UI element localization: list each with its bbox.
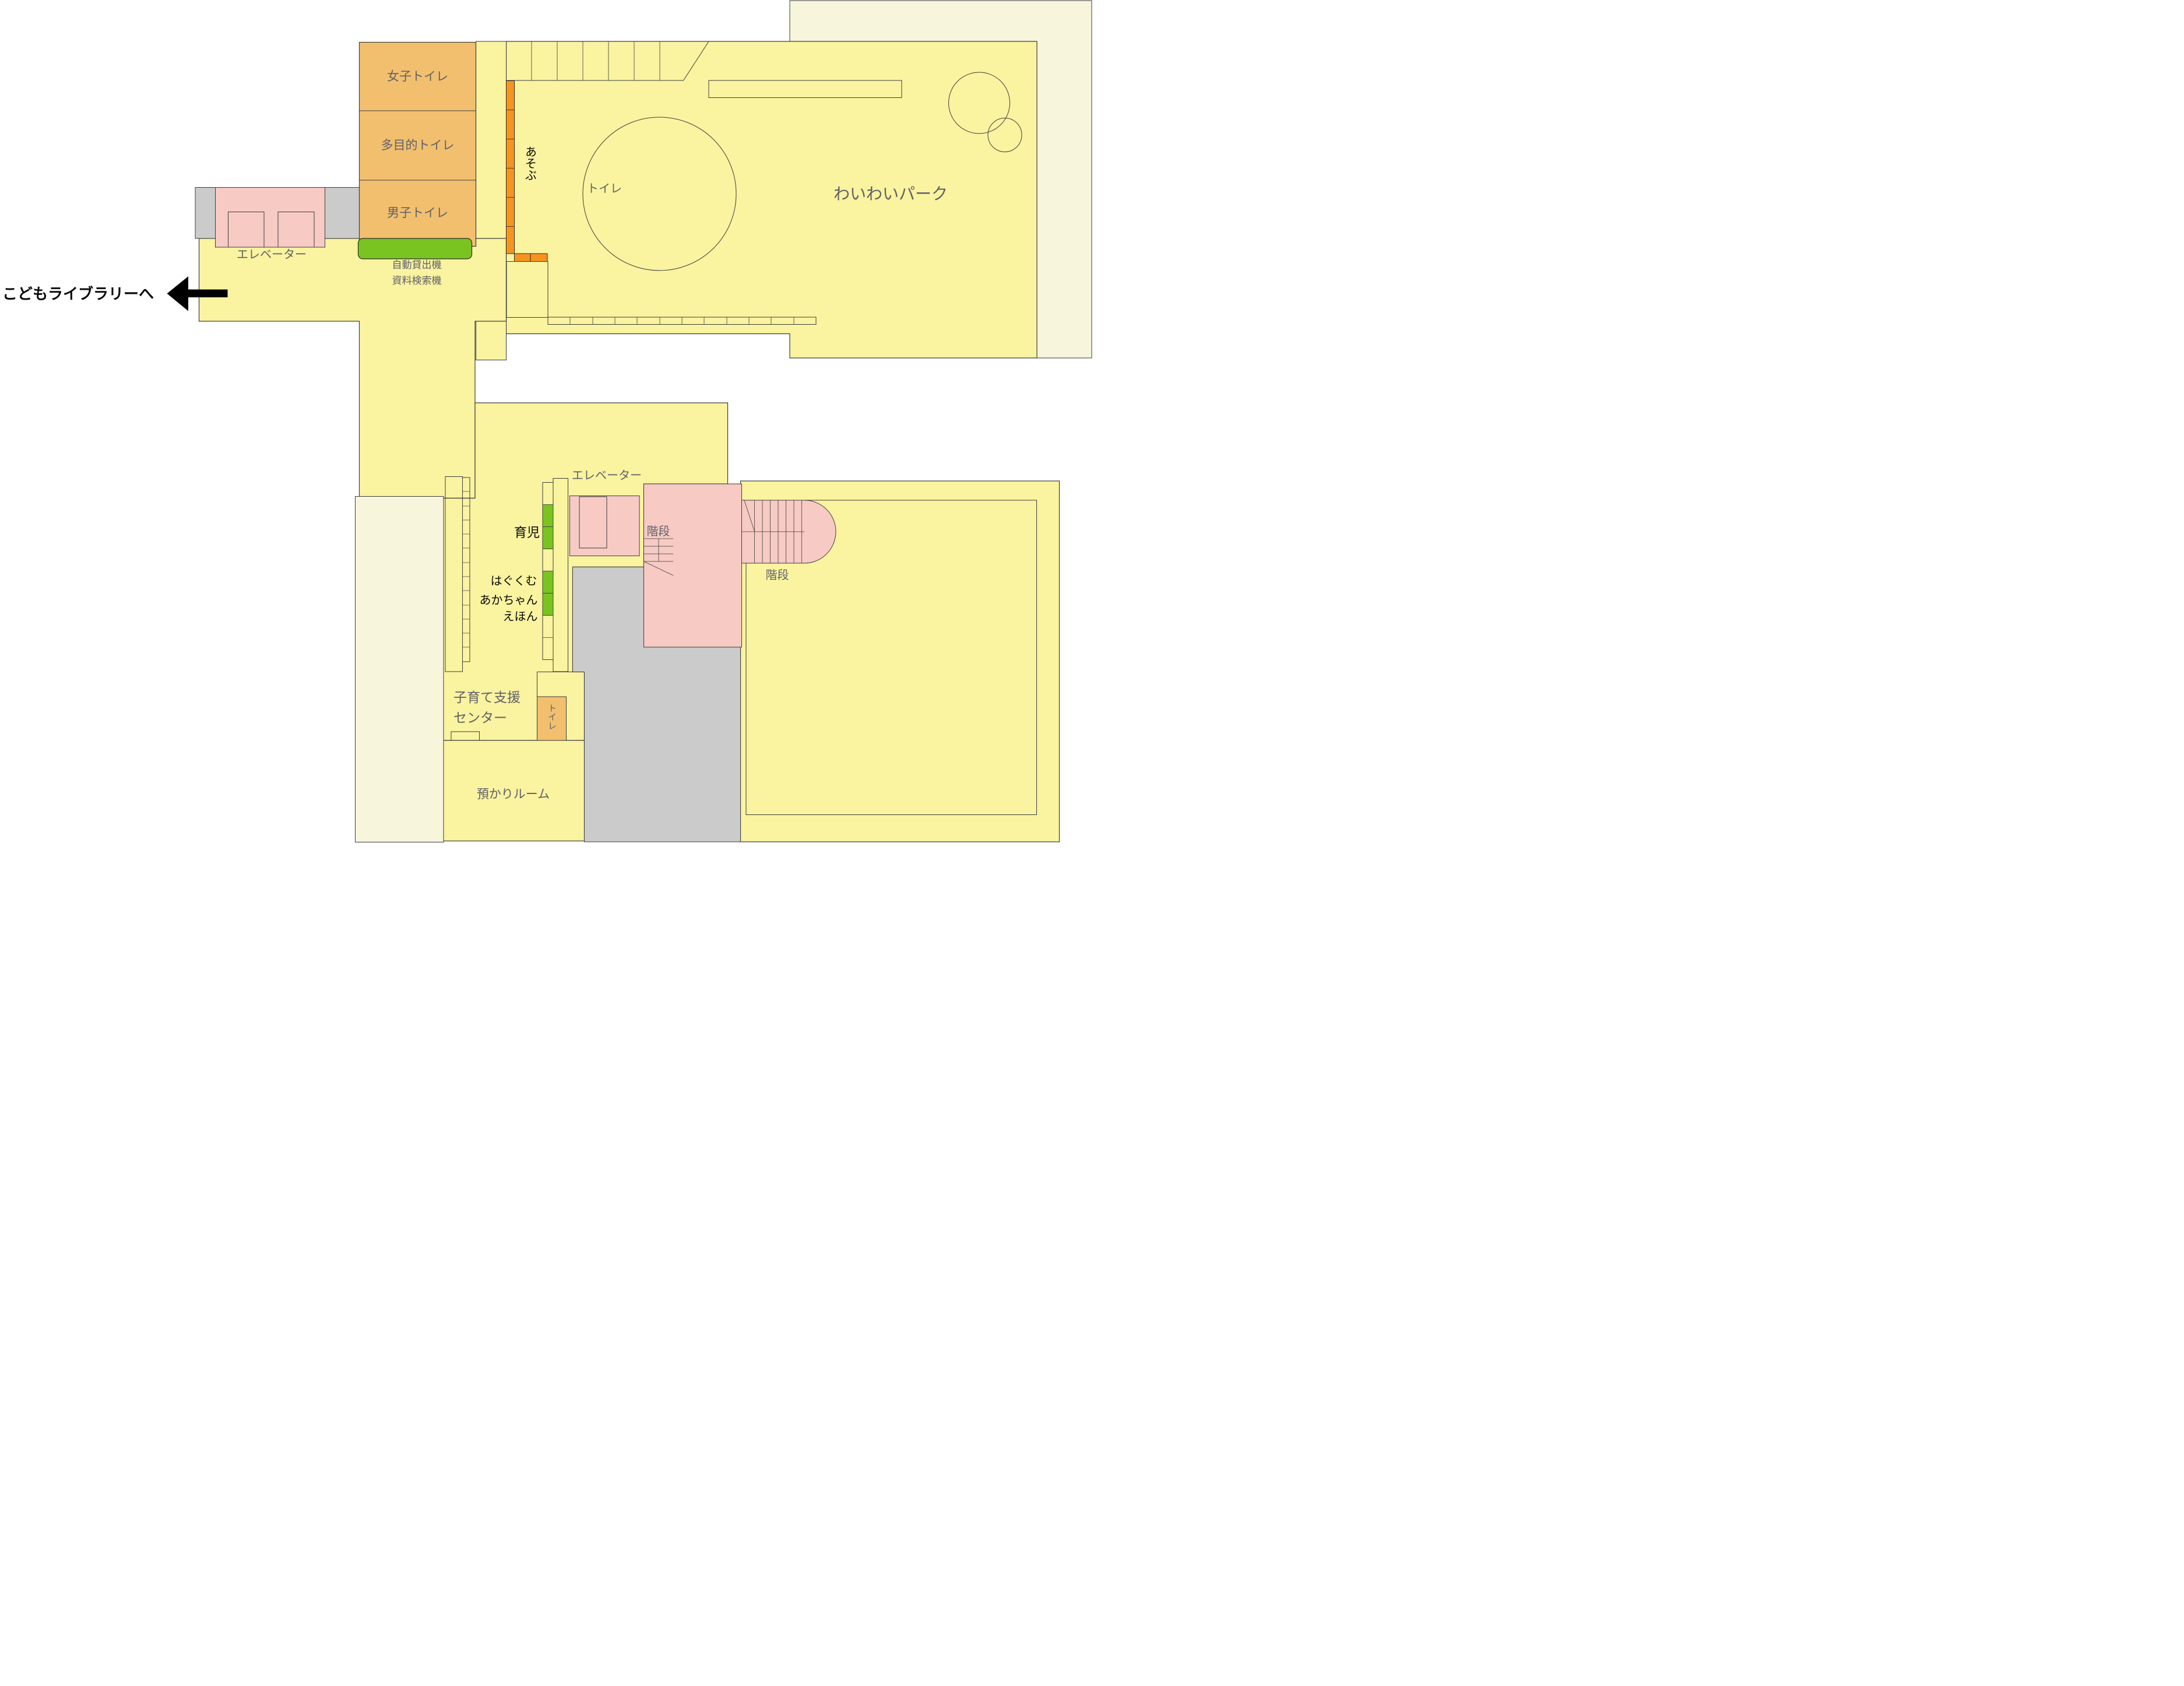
label-elevator-lower: エレベーター	[572, 469, 642, 482]
green-shelf-ehon-cell	[543, 571, 553, 593]
label-toilet-lower: トイレ	[547, 704, 557, 730]
auto-lending-machine-bar	[358, 238, 472, 259]
label-multipurpose-toilet: 多目的トイレ	[381, 139, 455, 152]
label-kosodate-1: 子育て支援	[453, 690, 520, 705]
label-womens-toilet: 女子トイレ	[387, 70, 448, 83]
room-waiwai-park-floor	[507, 41, 1038, 358]
label-auto-lending-1: 自動貸出機	[392, 259, 442, 271]
label-auto-lending-2: 資料検索機	[392, 275, 442, 286]
left-arrow-tail	[188, 290, 228, 298]
play-shelf-corner-cell	[515, 254, 531, 262]
label-kosodate-2: センター	[453, 710, 507, 725]
corridor-hall	[199, 238, 507, 498]
left-arrow-icon	[167, 276, 189, 311]
green-shelf-ikuji-cell	[543, 505, 553, 527]
label-asobu: あそぶ	[523, 146, 537, 181]
label-stairs-left: 階段	[647, 525, 670, 538]
label-mens-toilet: 男子トイレ	[387, 206, 448, 220]
label-to-kids-library: こどもライブラリーへ	[2, 285, 154, 303]
elevator-lower-block	[570, 496, 640, 556]
pale-lower-left-area	[356, 497, 444, 842]
label-waiwai-park: わいわいパーク	[833, 185, 948, 203]
label-elevator-upper: エレベーター	[237, 248, 307, 261]
floor-map: 女子トイレ 多目的トイレ 男子トイレ エレベーター 自動貸出機 資料検索機 こど…	[0, 0, 1092, 843]
play-shelf-strip	[507, 81, 515, 254]
label-hagukumu: はぐくむ	[491, 575, 537, 588]
stairs-block	[644, 484, 742, 647]
label-toilet-circle: トイレ	[587, 182, 622, 195]
elevator-upper-block	[216, 188, 325, 248]
label-akachan: あかちゃん	[480, 594, 538, 607]
green-shelf-ikuji-cell	[543, 527, 553, 549]
label-ehon: えほん	[503, 610, 538, 623]
green-shelf-ehon-cell	[543, 593, 553, 616]
label-azukari-room: 預かりルーム	[477, 788, 550, 801]
label-stairs-right: 階段	[766, 568, 789, 582]
label-ikuji: 育児	[514, 525, 540, 540]
play-shelf-corner-cell	[530, 254, 547, 262]
